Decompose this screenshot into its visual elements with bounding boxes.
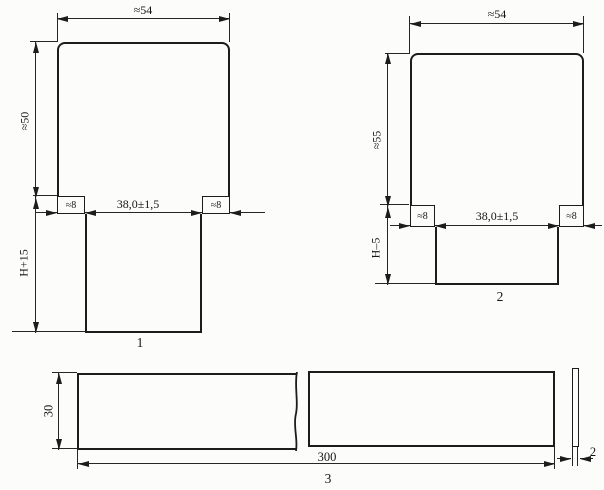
arrowhead-right xyxy=(46,210,57,216)
dimension-line xyxy=(387,53,388,285)
arrowhead-right xyxy=(544,461,555,467)
extension-line xyxy=(375,283,435,284)
arrowhead-right xyxy=(560,456,571,462)
arrowhead-left xyxy=(410,21,421,27)
fig3-length-label: 300 xyxy=(287,450,367,465)
arrowhead-right xyxy=(573,21,584,27)
fig2-left-tab: ≈8 xyxy=(410,205,435,227)
arrowhead-left xyxy=(57,16,68,22)
arrowhead-up xyxy=(56,373,62,384)
arrowhead-left xyxy=(584,223,595,229)
arrowhead-down xyxy=(385,196,391,207)
fig2-right-tab: ≈8 xyxy=(559,205,584,227)
fig1-right-tab: ≈8 xyxy=(202,196,230,214)
arrowhead-up xyxy=(385,53,391,64)
arrowhead-up xyxy=(33,198,39,209)
arrowhead-up xyxy=(33,42,39,53)
fig1-top-width-label: ≈54 xyxy=(93,3,193,18)
arrowhead-left xyxy=(78,461,89,467)
extension-line xyxy=(12,331,85,332)
dimension-line xyxy=(85,212,202,213)
fig2-tab-left-label: ≈8 xyxy=(417,211,428,222)
fig1-stem-height-label: H+15 xyxy=(17,249,32,276)
arrowhead-up xyxy=(385,207,391,218)
fig3-number-label: 3 xyxy=(318,471,338,487)
fig1-body-height-label: ≈50 xyxy=(18,112,33,131)
fig2-top-width-label: ≈54 xyxy=(447,7,547,22)
fig2-stem-height-label: H–5 xyxy=(369,238,384,259)
arrowhead-left xyxy=(230,210,241,216)
dimension-line xyxy=(410,23,584,24)
arrowhead-down xyxy=(56,439,62,450)
fig1-tab-left-label: ≈8 xyxy=(66,200,77,211)
fig2-slot-width-label: 38,0±1,5 xyxy=(447,209,547,224)
arrowhead-right xyxy=(399,223,410,229)
fig2-tab-right-label: ≈8 xyxy=(566,211,577,222)
arrowhead-right xyxy=(191,210,202,216)
fig3-edge-strip xyxy=(572,368,579,447)
fig2-number-label: 2 xyxy=(490,289,510,305)
extension-line xyxy=(572,447,573,466)
fig3-plate-right xyxy=(308,371,555,447)
fig2-body-outline xyxy=(410,53,584,207)
extension-line xyxy=(577,447,578,466)
arrowhead-left xyxy=(435,223,446,229)
fig3-height-label: 30 xyxy=(42,405,57,418)
fig1-stem-outline xyxy=(85,214,202,333)
break-line xyxy=(292,372,302,451)
technical-drawing-canvas: ≈54 ≈50 H+15 ≈8 ≈8 38,0±1,5 1 xyxy=(0,0,604,490)
fig1-left-tab: ≈8 xyxy=(57,196,85,214)
arrowhead-down xyxy=(33,187,39,198)
fig2-stem-outline xyxy=(435,227,559,285)
fig1-slot-width-label: 38,0±1,5 xyxy=(88,197,188,212)
arrowhead-right xyxy=(219,16,230,22)
dimension-line xyxy=(57,18,230,19)
fig1-number-label: 1 xyxy=(130,335,150,351)
fig2-body-height-label: ≈55 xyxy=(370,131,385,150)
arrowhead-right xyxy=(548,223,559,229)
fig3-thickness-label: 2 xyxy=(585,445,601,460)
fig1-tab-right-label: ≈8 xyxy=(211,200,222,211)
fig1-body-outline xyxy=(57,42,230,198)
fig3-plate-left xyxy=(77,373,297,450)
